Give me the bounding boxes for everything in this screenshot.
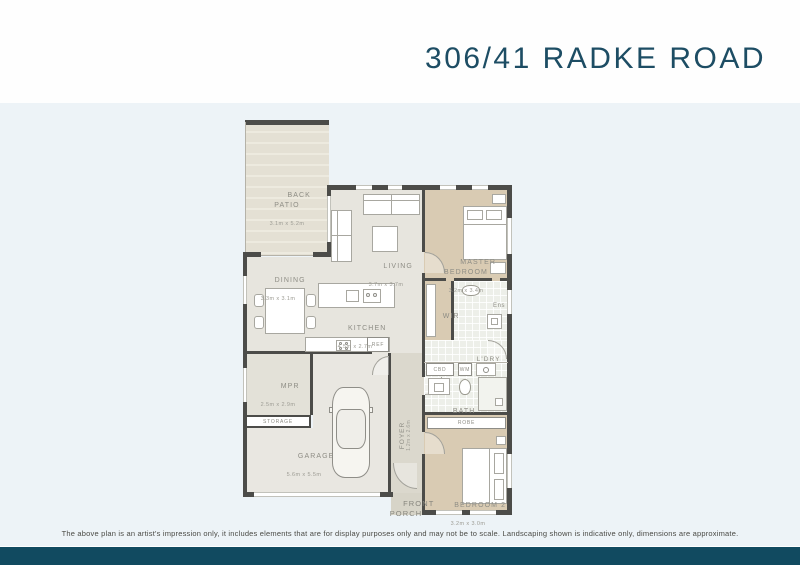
- dining-chair: [306, 316, 316, 329]
- floor-plan-page: 306/41 RADKE ROAD: [0, 0, 800, 565]
- wall-segment: [500, 278, 508, 281]
- window: [440, 185, 456, 190]
- toilet: [459, 379, 471, 395]
- room-label-mpr: MPR 2.5m x 2.9m: [256, 373, 299, 429]
- window: [472, 185, 488, 190]
- disclaimer-text: The above plan is an artist's impression…: [0, 529, 800, 538]
- room-label-garage: GARAGE 5.6m x 5.5m: [274, 443, 335, 499]
- room-label-foyer: FOYER 1.2m x 2.6m: [388, 411, 422, 459]
- footer-bar: [0, 547, 800, 565]
- chaise: [331, 210, 352, 262]
- floor-plan: REF CBD WM: [240, 118, 512, 520]
- room-label-dining: DINING 3.3m x 3.1m: [250, 267, 305, 323]
- window: [356, 185, 372, 190]
- bedside-table: [492, 194, 506, 204]
- window: [243, 368, 247, 402]
- wall-segment: [422, 363, 425, 377]
- room-label-back-patio: BACK PATIO 3.1m x 5.2m: [263, 182, 311, 247]
- cupboard: CBD: [426, 363, 454, 376]
- room-label-bath: BATH: [429, 398, 476, 426]
- room-label-kitchen: KITCHEN 4.5m x 2.7m: [324, 315, 387, 371]
- page-title: 306/41 RADKE ROAD: [425, 42, 766, 76]
- room-label-wir: WIR: [418, 303, 459, 331]
- room-label-ldry: L'DRY: [453, 347, 500, 373]
- room-label-living: LIVING 3.7m x 3.7m: [359, 253, 413, 309]
- cbd-label: CBD: [434, 367, 447, 373]
- room-label-ens: Ens: [475, 294, 505, 318]
- window: [243, 276, 247, 304]
- window: [507, 454, 512, 488]
- window: [388, 185, 402, 190]
- room-label-front-porch: FRONT PORCH: [378, 489, 435, 530]
- window: [507, 290, 512, 314]
- wall-segment: [245, 122, 246, 256]
- bath-vanity: [428, 378, 450, 395]
- plan-canvas: REF CBD WM: [0, 103, 800, 546]
- wall-segment: [422, 185, 425, 252]
- wall-segment: [245, 120, 329, 125]
- car: [330, 387, 372, 478]
- shower: [478, 377, 507, 411]
- wall-segment: [310, 353, 313, 415]
- sofa: [363, 194, 420, 215]
- coffee-table: [372, 226, 398, 252]
- dining-chair: [306, 294, 316, 307]
- bedside-table: [496, 436, 506, 445]
- window: [507, 218, 512, 254]
- room-label-bedroom2: BEDROOM 2 3.2m x 3.0m: [430, 492, 506, 548]
